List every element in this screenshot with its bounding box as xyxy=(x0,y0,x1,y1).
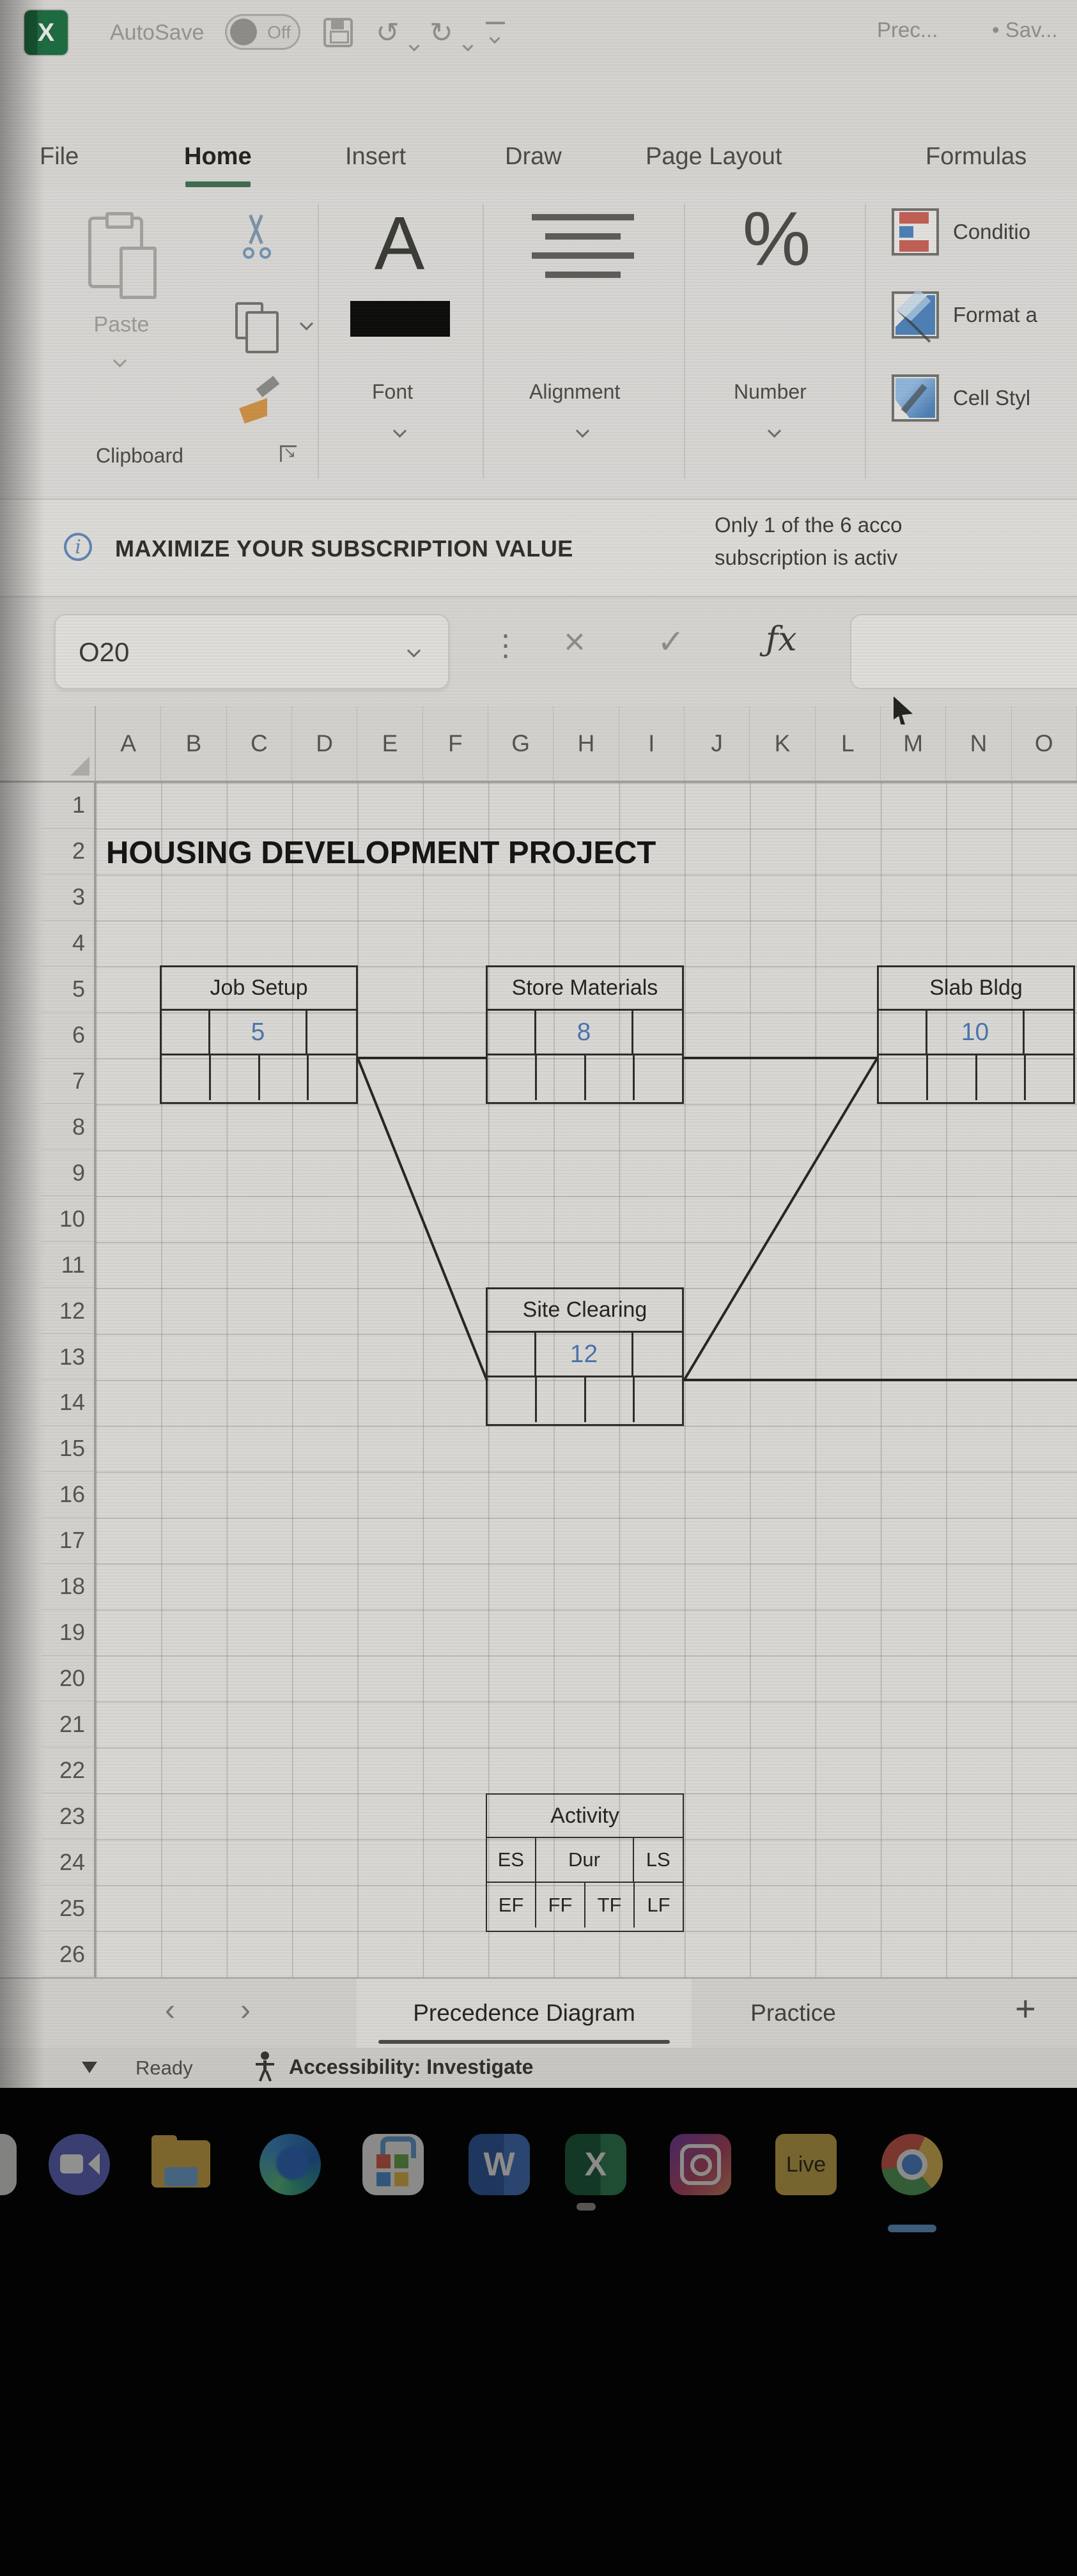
excel-running-indicator xyxy=(577,2203,596,2211)
column-header[interactable]: K xyxy=(750,706,815,781)
title-bar: X AutoSave Off ↺ ↻ Prec... • Sav... xyxy=(0,0,1077,77)
cell-styles-label: Cell Styl xyxy=(953,386,1030,410)
es-cell[interactable] xyxy=(488,1333,536,1376)
es-cell[interactable] xyxy=(879,1011,927,1054)
row-header[interactable]: 26 xyxy=(42,1931,94,1977)
sheet-prev-icon[interactable]: ‹ xyxy=(165,1993,175,2028)
subscription-message-detail: Only 1 of the 6 acco subscription is act… xyxy=(715,509,903,574)
ff-cell[interactable] xyxy=(928,1055,977,1100)
paste-chevron-icon xyxy=(113,354,127,367)
cut-button[interactable] xyxy=(238,214,276,259)
taskbar: W X Live xyxy=(0,2127,1077,2255)
name-box-value: O20 xyxy=(79,637,129,668)
tab-file[interactable]: File xyxy=(40,143,79,171)
conditional-formatting-button[interactable]: Conditio xyxy=(892,206,1077,257)
legend-ff: FF xyxy=(536,1883,585,1928)
ff-cell[interactable] xyxy=(537,1377,586,1422)
excel-icon[interactable]: X xyxy=(565,2134,626,2195)
format-painter-button[interactable] xyxy=(235,381,280,433)
column-header[interactable]: M xyxy=(881,706,946,781)
video-call-icon[interactable] xyxy=(49,2134,110,2195)
status-bar: Ready Accessibility: Investigate xyxy=(0,2048,1077,2088)
undo-chevron-icon[interactable] xyxy=(409,41,420,52)
redo-chevron-icon[interactable] xyxy=(463,41,474,52)
ff-cell[interactable] xyxy=(211,1055,260,1100)
excel-window: X AutoSave Off ↺ ↻ Prec... • Sav... File… xyxy=(0,0,1077,2088)
group-separator xyxy=(483,204,484,479)
legend-lf: LF xyxy=(635,1883,683,1928)
ribbon: Paste Clipboard A Font Alignment % Numbe… xyxy=(0,188,1077,500)
connector-siteclearing-right[interactable] xyxy=(684,1379,1077,1381)
node-name: Store Materials xyxy=(488,967,682,1011)
column-header[interactable]: D xyxy=(292,706,357,781)
formula-input[interactable] xyxy=(850,614,1077,689)
cell-styles-button[interactable]: Cell Styl xyxy=(892,372,1077,424)
tf-cell[interactable] xyxy=(586,1055,635,1100)
ableton-live-icon[interactable]: Live xyxy=(775,2134,837,2195)
quick-access-customize-icon[interactable] xyxy=(486,22,505,24)
ff-cell[interactable] xyxy=(537,1055,586,1100)
screen-photo: X AutoSave Off ↺ ↻ Prec... • Sav... File… xyxy=(0,0,1077,2576)
node-job-setup[interactable]: Job Setup 5 xyxy=(160,965,358,1104)
connector-slabbldg-siteclearing[interactable] xyxy=(683,1058,878,1381)
formula-bar: O20 ⋮ × ✓ ƒx xyxy=(0,597,1077,706)
connector-jobsetup-siteclearing[interactable] xyxy=(357,1058,488,1381)
sheet-tab-precedence-diagram[interactable]: Precedence Diagram xyxy=(357,1979,692,2048)
name-box[interactable]: O20 xyxy=(54,614,449,689)
format-as-table-button[interactable]: Format a xyxy=(892,289,1077,341)
column-header[interactable]: F xyxy=(423,706,488,781)
row-header[interactable]: 20 xyxy=(42,1656,94,1702)
row-header[interactable]: 4 xyxy=(42,921,94,967)
ef-cell[interactable] xyxy=(162,1055,211,1100)
row-header[interactable]: 6 xyxy=(42,1013,94,1059)
legend-ls: LS xyxy=(634,1838,683,1882)
subscription-detail-line2: subscription is activ xyxy=(715,541,903,574)
sheet-tab-practice[interactable]: Practice xyxy=(701,1979,886,2048)
column-header[interactable]: A xyxy=(96,706,161,781)
ls-cell[interactable] xyxy=(307,1011,356,1054)
row-header[interactable]: 25 xyxy=(42,1885,94,1931)
lf-cell[interactable] xyxy=(635,1377,682,1422)
worksheet-title-cell[interactable]: HOUSING DEVELOPMENT PROJECT xyxy=(106,835,656,871)
number-group-icon[interactable]: % xyxy=(729,195,825,283)
select-all-button[interactable] xyxy=(42,706,96,781)
lf-cell[interactable] xyxy=(1026,1055,1073,1100)
document-title[interactable]: Prec... xyxy=(877,18,938,42)
brush-handle-icon xyxy=(256,376,280,397)
alignment-group-chevron-icon[interactable] xyxy=(576,424,589,438)
row-header[interactable]: 9 xyxy=(42,1150,94,1196)
toggle-knob-icon xyxy=(230,19,257,45)
ls-cell[interactable] xyxy=(1025,1011,1073,1054)
row-header[interactable]: 10 xyxy=(42,1196,94,1242)
duration-cell[interactable]: 12 xyxy=(536,1333,633,1376)
column-header[interactable]: N xyxy=(946,706,1011,781)
row-header[interactable]: 7 xyxy=(42,1059,94,1105)
row-header[interactable]: 17 xyxy=(42,1518,94,1564)
node-name: Slab Bldg xyxy=(879,967,1073,1011)
tf-cell[interactable] xyxy=(586,1377,635,1422)
tf-cell[interactable] xyxy=(260,1055,309,1100)
tab-formulas[interactable]: Formulas xyxy=(926,143,1027,171)
copy-chevron-icon[interactable] xyxy=(300,317,313,330)
tab-home[interactable]: Home xyxy=(184,143,252,171)
node-name: Site Clearing xyxy=(488,1289,682,1333)
column-header[interactable]: G xyxy=(488,706,554,781)
column-header-row: ABCDEFGHIJKLMNO xyxy=(0,706,1077,783)
info-icon: i xyxy=(64,533,92,561)
group-separator xyxy=(865,204,866,479)
instagram-icon[interactable] xyxy=(670,2134,731,2195)
subscription-message-bar: i MAXIMIZE YOUR SUBSCRIPTION VALUE Only … xyxy=(0,500,1077,597)
accessibility-person-icon xyxy=(251,2051,279,2083)
paste-label: Paste xyxy=(70,312,173,337)
tf-cell[interactable] xyxy=(977,1055,1027,1100)
number-group-label: Number xyxy=(734,380,807,404)
es-cell[interactable] xyxy=(488,1011,536,1054)
connector-storematerials-slabbldg[interactable] xyxy=(684,1057,877,1059)
es-cell[interactable] xyxy=(162,1011,210,1054)
name-box-chevron-icon[interactable] xyxy=(407,644,421,657)
node-site-clearing[interactable]: Site Clearing 12 xyxy=(486,1287,684,1426)
ls-cell[interactable] xyxy=(633,1333,682,1376)
redo-icon[interactable]: ↻ xyxy=(430,17,453,49)
alignment-group-icon[interactable] xyxy=(532,214,634,291)
row-headers: 1234567891011121314151617181920212223242… xyxy=(42,783,96,1977)
row-header[interactable]: 11 xyxy=(42,1242,94,1288)
autosave-state: Off xyxy=(267,22,291,43)
sheet-next-icon[interactable]: › xyxy=(240,1993,251,2028)
column-header[interactable]: B xyxy=(161,706,226,781)
excel-app-icon[interactable]: X xyxy=(24,10,68,55)
row-header[interactable]: 19 xyxy=(42,1610,94,1656)
ef-cell[interactable] xyxy=(488,1377,537,1422)
worksheet-grid[interactable]: 1234567891011121314151617181920212223242… xyxy=(0,783,1077,1977)
autosave-toggle[interactable]: Off xyxy=(225,14,300,50)
row-header[interactable]: 16 xyxy=(42,1472,94,1518)
node-slab-bldg[interactable]: Slab Bldg 10 xyxy=(877,965,1075,1104)
group-separator xyxy=(684,204,685,479)
formula-bar-dots-icon: ⋮ xyxy=(491,628,520,663)
row-header[interactable]: 22 xyxy=(42,1747,94,1793)
tab-insert[interactable]: Insert xyxy=(345,143,406,171)
lf-cell[interactable] xyxy=(635,1055,682,1100)
column-header[interactable]: C xyxy=(227,706,292,781)
lf-cell[interactable] xyxy=(309,1055,356,1100)
chrome-running-indicator xyxy=(888,2225,936,2232)
font-group-chevron-icon[interactable] xyxy=(393,424,407,438)
column-header[interactable]: E xyxy=(357,706,422,781)
node-name: Job Setup xyxy=(162,967,356,1011)
legend-es: ES xyxy=(487,1838,536,1882)
tab-page-layout[interactable]: Page Layout xyxy=(646,143,782,171)
conditional-formatting-label: Conditio xyxy=(953,220,1030,244)
row-header[interactable]: 23 xyxy=(42,1793,94,1839)
subscription-message-title: MAXIMIZE YOUR SUBSCRIPTION VALUE xyxy=(115,535,573,562)
connector-jobsetup-storematerials[interactable] xyxy=(358,1057,487,1059)
format-as-table-icon xyxy=(892,291,939,339)
chrome-icon[interactable] xyxy=(881,2134,943,2195)
quick-access-chevron-icon[interactable] xyxy=(490,33,500,44)
row-header[interactable]: 18 xyxy=(42,1564,94,1610)
save-icon[interactable] xyxy=(323,18,353,47)
paste-button[interactable]: Paste xyxy=(70,211,173,480)
format-as-table-label: Format a xyxy=(953,303,1037,327)
font-group-icon[interactable]: A xyxy=(358,200,441,287)
row-header[interactable]: 1 xyxy=(42,783,94,829)
legend-title: Activity xyxy=(487,1795,683,1838)
legend-dur: Dur xyxy=(536,1838,634,1882)
column-header[interactable]: L xyxy=(816,706,881,781)
row-header[interactable]: 15 xyxy=(42,1426,94,1472)
legend-ef: EF xyxy=(487,1883,536,1928)
column-header[interactable]: I xyxy=(619,706,685,781)
row-header[interactable]: 12 xyxy=(42,1288,94,1334)
row-header[interactable]: 5 xyxy=(42,967,94,1013)
paste-clipboard-icon xyxy=(88,217,143,288)
clipboard-dialog-launcher-icon[interactable] xyxy=(280,445,297,462)
row-header[interactable]: 13 xyxy=(42,1334,94,1380)
status-caret-icon[interactable] xyxy=(82,2062,97,2073)
number-group-chevron-icon[interactable] xyxy=(768,424,781,438)
row-header[interactable]: 8 xyxy=(42,1104,94,1150)
undo-icon[interactable]: ↺ xyxy=(376,17,399,49)
font-group-label: Font xyxy=(372,380,413,404)
partial-app-icon[interactable] xyxy=(0,2134,17,2195)
cell-styles-icon xyxy=(892,374,939,422)
subscription-detail-line1: Only 1 of the 6 acco xyxy=(715,509,903,541)
font-color-bar-icon xyxy=(350,301,450,337)
microsoft-store-icon[interactable] xyxy=(362,2134,424,2195)
column-header[interactable]: J xyxy=(685,706,750,781)
duration-cell[interactable]: 8 xyxy=(536,1011,633,1054)
autosave-label: AutoSave xyxy=(110,20,204,45)
row-header[interactable]: 24 xyxy=(42,1839,94,1885)
copy-button[interactable] xyxy=(235,302,263,339)
clipboard-group-label: Clipboard xyxy=(96,444,183,468)
ef-cell[interactable] xyxy=(879,1055,928,1100)
brush-head-icon xyxy=(239,398,267,424)
edge-browser-icon[interactable] xyxy=(260,2134,321,2195)
alignment-group-label: Alignment xyxy=(529,380,620,404)
column-header[interactable]: O xyxy=(1012,706,1077,781)
legend-tf: TF xyxy=(585,1883,635,1928)
cancel-icon[interactable]: × xyxy=(564,620,585,663)
ribbon-tab-bar: File Home Insert Draw Page Layout Formul… xyxy=(0,77,1077,188)
enter-icon[interactable]: ✓ xyxy=(657,623,685,661)
node-store-materials[interactable]: Store Materials 8 xyxy=(486,965,684,1104)
row-header[interactable]: 14 xyxy=(42,1380,94,1426)
sheet-tab-bar: ‹ › Precedence Diagram Practice + xyxy=(0,1977,1077,2048)
file-explorer-icon[interactable] xyxy=(150,2134,212,2195)
ls-cell[interactable] xyxy=(633,1011,682,1054)
save-status: • Sav... xyxy=(992,18,1058,42)
add-sheet-icon[interactable]: + xyxy=(1015,1988,1036,2029)
tab-draw[interactable]: Draw xyxy=(505,143,562,171)
conditional-formatting-icon xyxy=(892,208,939,256)
cells-area[interactable]: HOUSING DEVELOPMENT PROJECT Job Setup 5 … xyxy=(96,783,1077,1977)
insert-function-icon[interactable]: ƒx xyxy=(766,620,797,659)
duration-cell[interactable]: 10 xyxy=(927,1011,1025,1054)
column-headers: ABCDEFGHIJKLMNO xyxy=(96,706,1077,781)
column-header[interactable]: H xyxy=(554,706,619,781)
status-ready: Ready xyxy=(136,2057,193,2080)
accessibility-status[interactable]: Accessibility: Investigate xyxy=(289,2055,533,2079)
legend-activity-box[interactable]: Activity ES Dur LS EF FF TF LF xyxy=(486,1793,684,1932)
row-header[interactable]: 21 xyxy=(42,1701,94,1747)
row-header[interactable]: 2 xyxy=(42,829,94,875)
ef-cell[interactable] xyxy=(488,1055,537,1100)
word-icon[interactable]: W xyxy=(469,2134,530,2195)
duration-cell[interactable]: 5 xyxy=(210,1011,307,1054)
group-separator xyxy=(318,204,319,479)
row-header[interactable]: 3 xyxy=(42,875,94,921)
